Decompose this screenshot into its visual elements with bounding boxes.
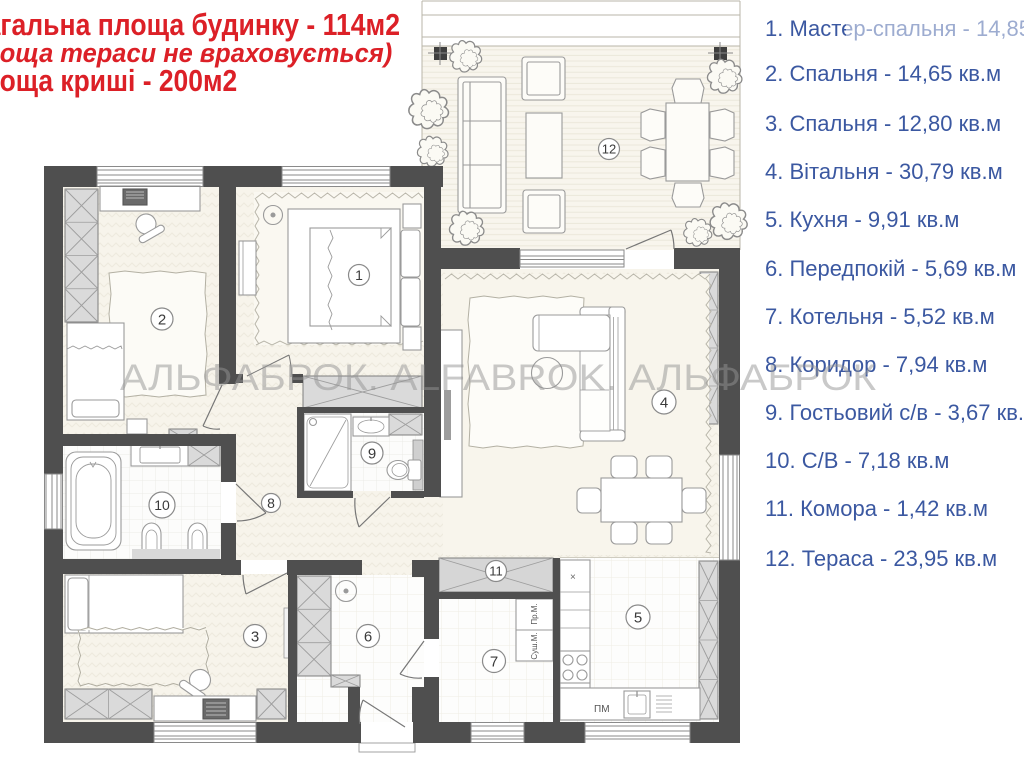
svg-text:3. Спальня - 12,80 кв.м: 3. Спальня - 12,80 кв.м <box>765 111 1001 136</box>
svg-text:ПМ: ПМ <box>594 704 610 715</box>
svg-text:5. Кухня - 9,91 кв.м: 5. Кухня - 9,91 кв.м <box>765 207 959 232</box>
svg-text:2: 2 <box>158 311 166 328</box>
svg-text:Суш.М.: Суш.М. <box>530 632 539 659</box>
svg-text:11. Комора - 1,42 кв.м: 11. Комора - 1,42 кв.м <box>765 496 988 521</box>
svg-text:Площа криші - 200м2: Площа криші - 200м2 <box>0 64 237 98</box>
svg-text:8: 8 <box>267 495 275 511</box>
svg-text:10: 10 <box>154 497 170 513</box>
svg-text:Пр.М.: Пр.М. <box>530 603 539 624</box>
svg-text:12. Тераса - 23,95 кв.м: 12. Тераса - 23,95 кв.м <box>765 546 997 571</box>
svg-text:1: 1 <box>355 267 363 283</box>
svg-text:11: 11 <box>489 564 503 579</box>
svg-text:9. Гостьовий с/в - 3,67 кв.м: 9. Гостьовий с/в - 3,67 кв.м <box>765 400 1024 425</box>
svg-text:7: 7 <box>490 653 498 670</box>
svg-text:3: 3 <box>251 628 259 645</box>
svg-text:4. Вітальня - 30,79 кв.м: 4. Вітальня - 30,79 кв.м <box>765 159 1003 184</box>
svg-text:Загальна площа будинку - 114м2: Загальна площа будинку - 114м2 <box>0 8 400 42</box>
svg-text:7. Котельня - 5,52 кв.м: 7. Котельня - 5,52 кв.м <box>765 304 995 329</box>
svg-text:×: × <box>570 572 576 583</box>
svg-text:6: 6 <box>364 628 372 645</box>
svg-text:9: 9 <box>368 445 376 462</box>
svg-text:5: 5 <box>634 609 642 626</box>
svg-text:12: 12 <box>602 142 616 157</box>
svg-text:10. С/В - 7,18 кв.м: 10. С/В - 7,18 кв.м <box>765 448 949 473</box>
svg-text:АЛЬФАБРОК. ALFABROK. АЛЬФАБРОК: АЛЬФАБРОК. ALFABROK. АЛЬФАБРОК <box>120 357 876 398</box>
svg-text:6. Передпокій - 5,69 кв.м: 6. Передпокій - 5,69 кв.м <box>765 256 1016 281</box>
svg-text:2. Спальня - 14,65 кв.м: 2. Спальня - 14,65 кв.м <box>765 61 1001 86</box>
